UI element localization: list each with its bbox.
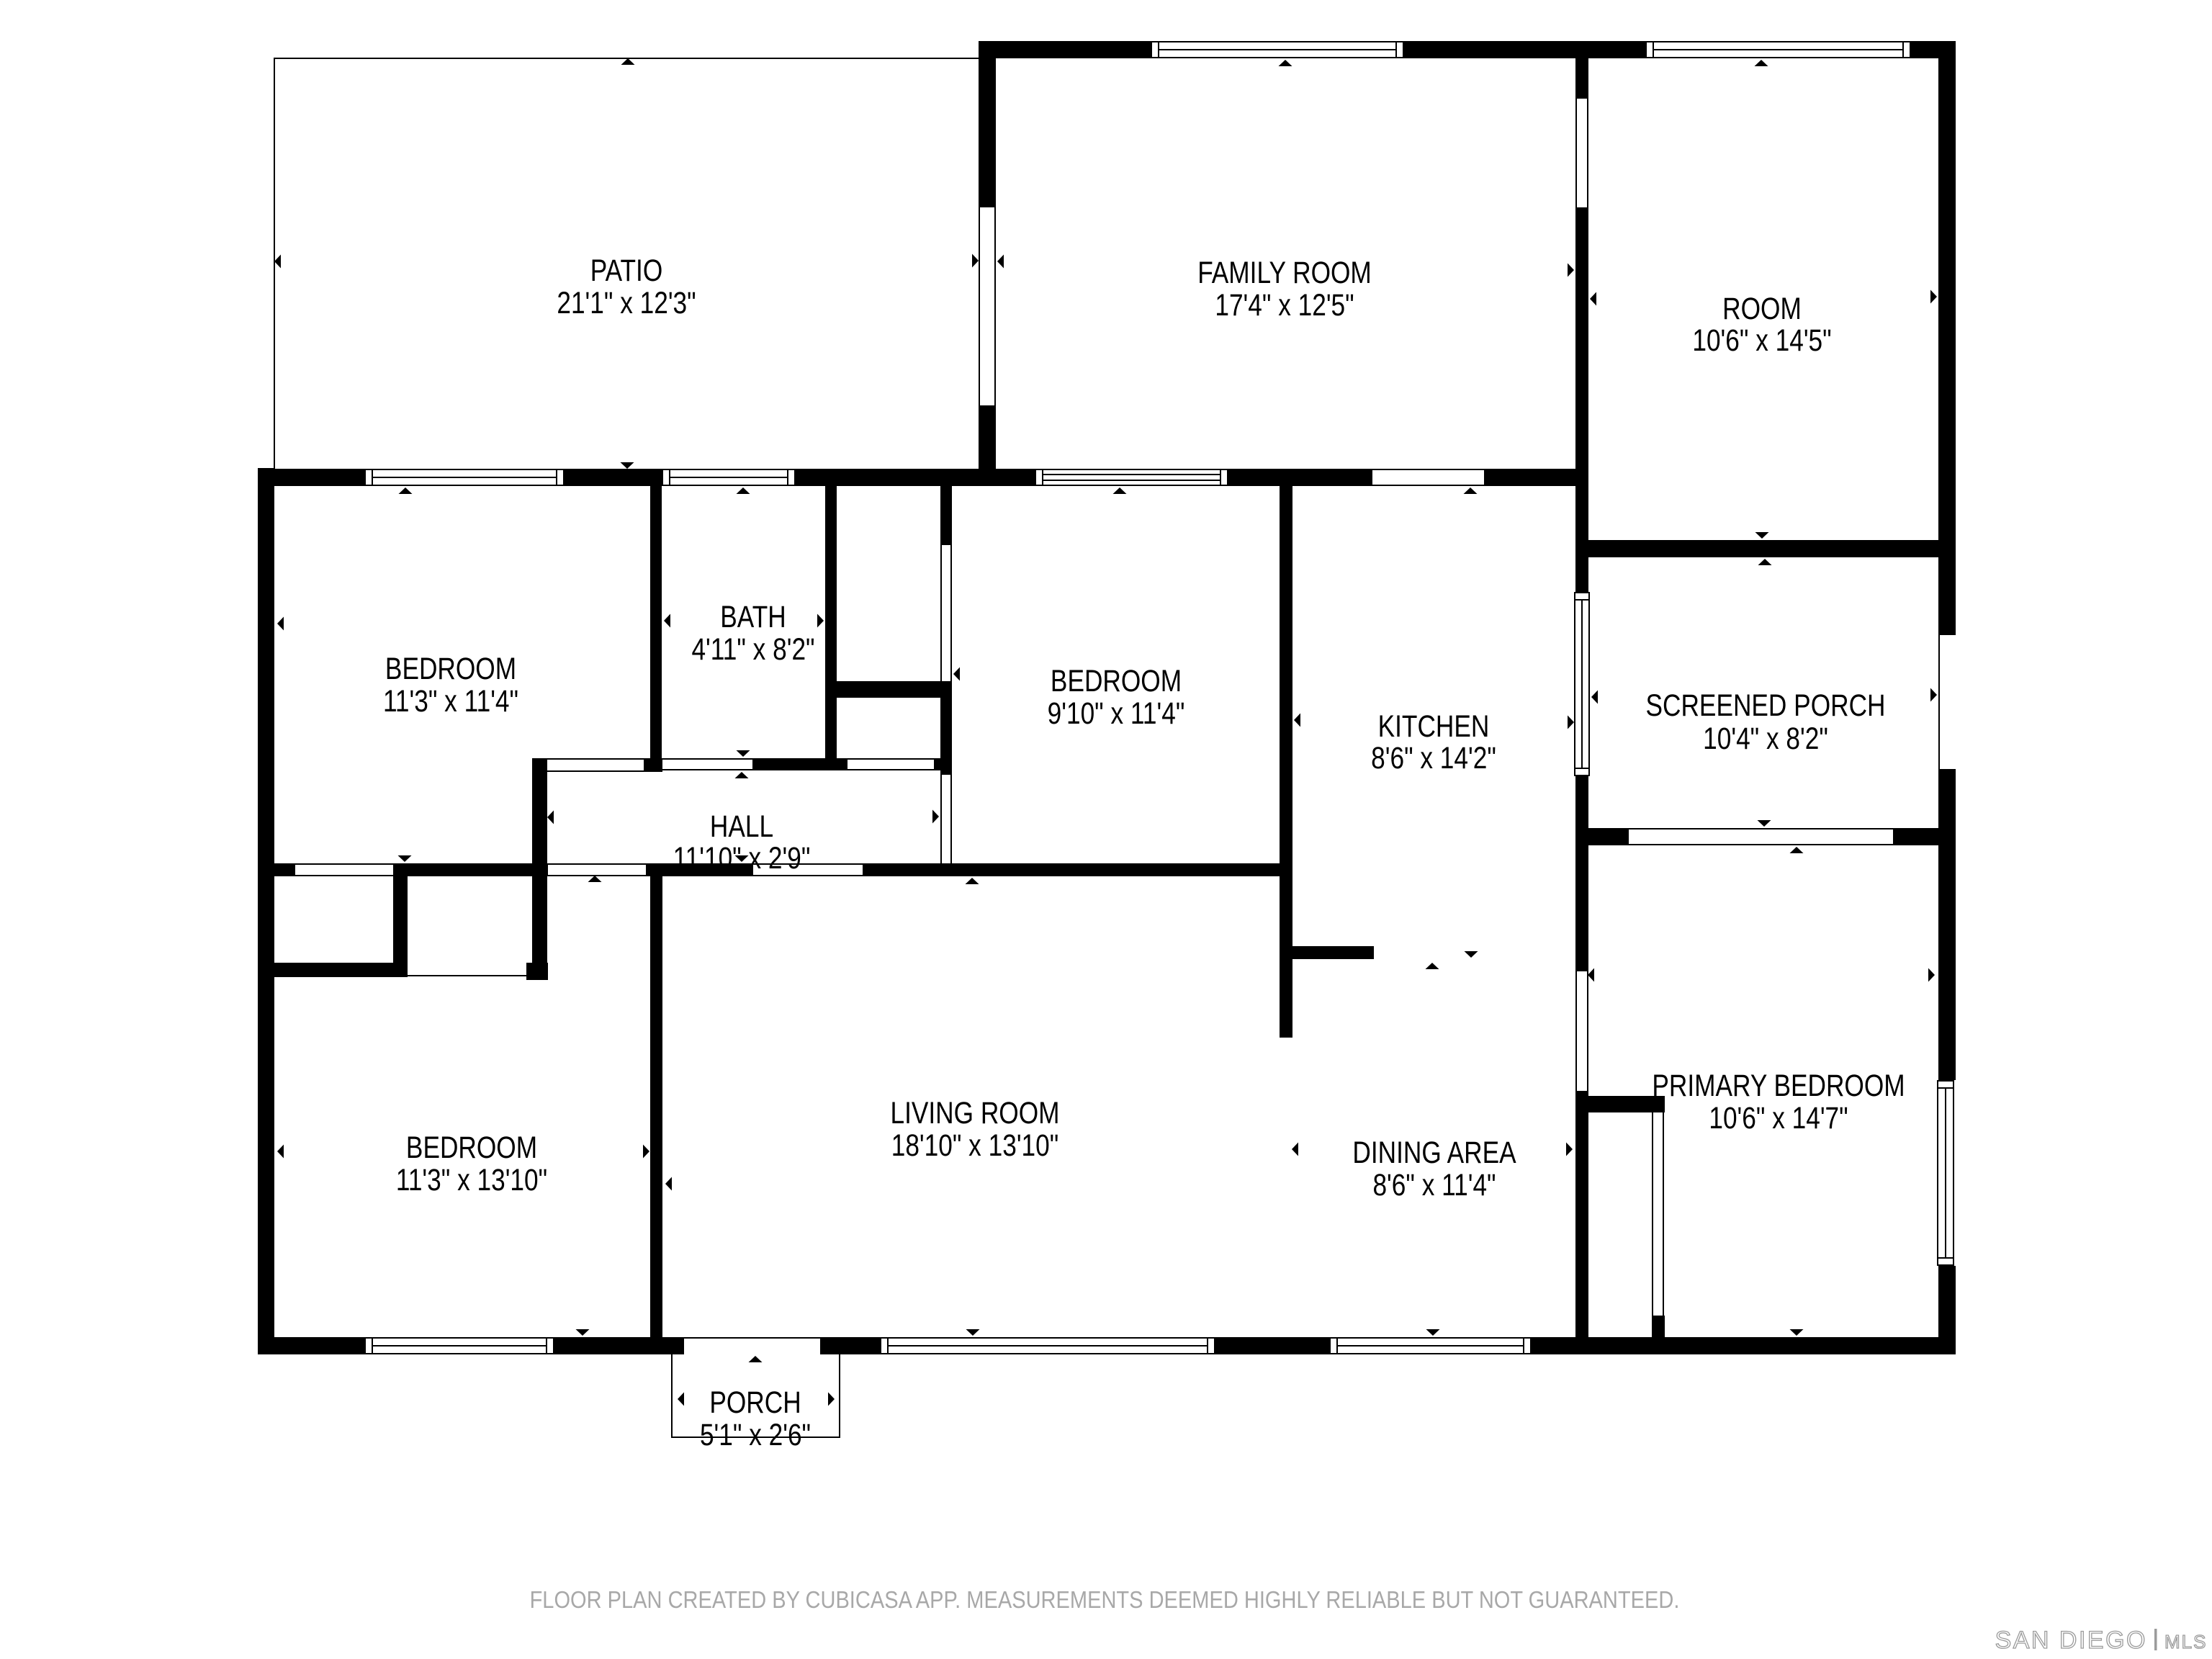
svg-text:11'3" x 13'10": 11'3" x 13'10" [396,1163,547,1197]
svg-text:21'1" x 12'3": 21'1" x 12'3" [557,286,696,320]
svg-text:KITCHEN: KITCHEN [1378,709,1490,744]
svg-text:10'6" x 14'5": 10'6" x 14'5" [1692,323,1831,358]
svg-text:LIVING ROOM: LIVING ROOM [890,1096,1059,1130]
svg-text:8'6" x 11'4": 8'6" x 11'4" [1372,1168,1496,1202]
svg-text:PORCH: PORCH [709,1385,801,1420]
svg-text:8'6" x 14'2": 8'6" x 14'2" [1371,741,1496,775]
svg-text:BEDROOM: BEDROOM [1051,664,1182,698]
svg-text:9'10" x 11'4": 9'10" x 11'4" [1048,696,1185,731]
svg-text:PRIMARY BEDROOM: PRIMARY BEDROOM [1652,1069,1905,1103]
svg-text:PATIO: PATIO [590,253,663,288]
svg-text:HALL: HALL [710,809,773,844]
svg-text:10'4" x 8'2": 10'4" x 8'2" [1703,721,1828,756]
svg-text:FAMILY ROOM: FAMILY ROOM [1197,256,1372,290]
svg-text:18'10" x 13'10": 18'10" x 13'10" [891,1128,1059,1163]
svg-text:17'4" x 12'5": 17'4" x 12'5" [1215,288,1354,323]
svg-text:FLOOR PLAN CREATED BY CUBICASA: FLOOR PLAN CREATED BY CUBICASA APP. MEAS… [530,1586,1680,1613]
svg-text:SAN DIEGO: SAN DIEGO [1995,1627,2147,1654]
svg-text:SCREENED PORCH: SCREENED PORCH [1646,688,1886,723]
svg-text:BEDROOM: BEDROOM [406,1130,537,1165]
svg-text:MLS: MLS [2164,1631,2207,1653]
svg-text:DINING AREA: DINING AREA [1352,1136,1516,1170]
svg-text:BEDROOM: BEDROOM [385,652,516,686]
svg-text:ROOM: ROOM [1722,292,1802,326]
svg-text:BATH: BATH [720,600,786,634]
svg-text:10'6" x 14'7": 10'6" x 14'7" [1709,1101,1848,1136]
svg-text:5'1" x 2'6": 5'1" x 2'6" [700,1418,811,1452]
svg-text:11'3" x 11'4": 11'3" x 11'4" [383,684,518,719]
svg-text:4'11" x 8'2": 4'11" x 8'2" [691,632,814,667]
